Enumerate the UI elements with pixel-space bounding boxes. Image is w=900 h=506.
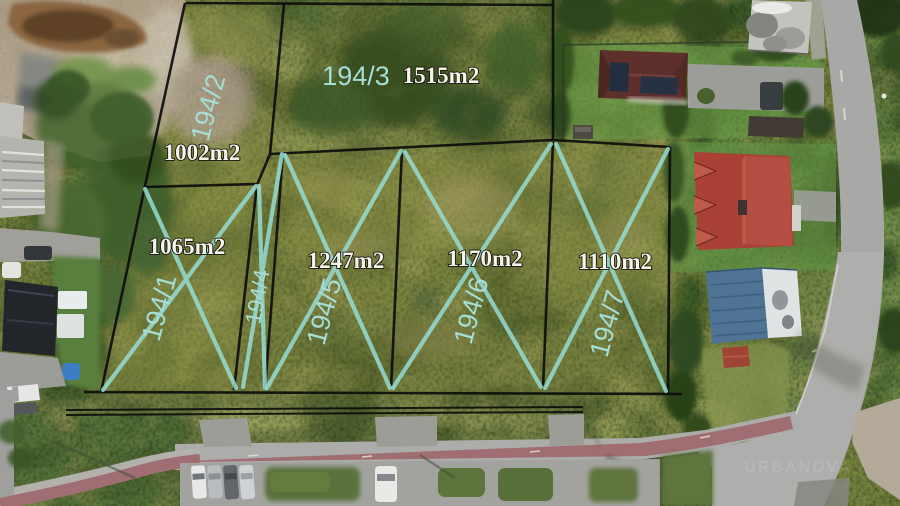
svg-text:1110m2: 1110m2 — [578, 249, 652, 274]
svg-text:1247m2: 1247m2 — [308, 248, 385, 273]
svg-text:1515m2: 1515m2 — [403, 63, 480, 88]
svg-text:1170m2: 1170m2 — [447, 246, 522, 271]
svg-text:1065m2: 1065m2 — [149, 234, 226, 259]
svg-text:1002m2: 1002m2 — [164, 140, 241, 165]
svg-text:194/3: 194/3 — [322, 61, 390, 91]
svg-text:URBANOVA: URBANOVA — [744, 459, 851, 476]
